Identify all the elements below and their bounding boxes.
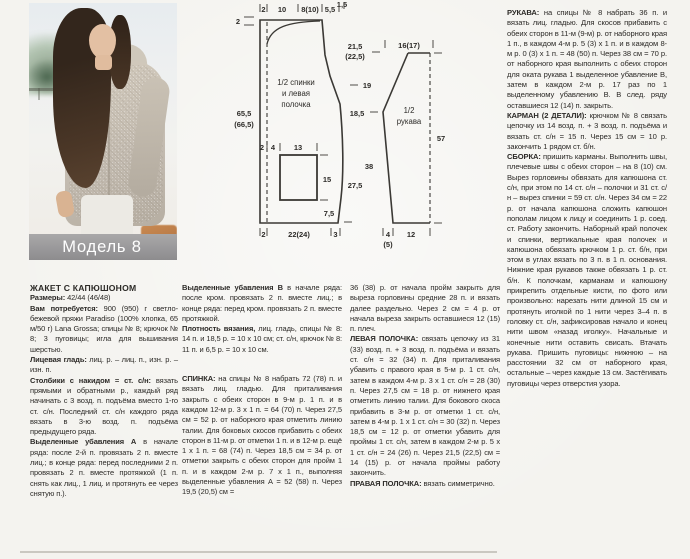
paragraph-text: в начале ряда: после 2-й п. провязать 2 … xyxy=(30,437,178,497)
measure-sleeve-top: 16(17) xyxy=(398,41,420,50)
paragraph-label: Плотность вязания, xyxy=(182,324,255,333)
height-ticks xyxy=(344,52,380,222)
paragraph-label: Выделенные убавления А xyxy=(30,437,136,446)
left-edge-ticks xyxy=(244,17,254,25)
paragraph-assembly: СБОРКА: пришить карманы. Выполнить швы, … xyxy=(507,152,667,389)
measure-bottom-width: 22(24) xyxy=(288,230,310,239)
model-photo: Модель 8 xyxy=(29,3,177,260)
paragraph-label: ПРАВАЯ ПОЛОЧКА: xyxy=(350,479,421,488)
measure-hem-height: 27,5 xyxy=(348,181,363,190)
paragraph-text: связать цепочку из 31 (33) возд. п. + 3 … xyxy=(350,334,500,477)
back-piece-label: и левая xyxy=(282,89,310,98)
paragraph-text: на спицы № 8 набрать 72 (78) п. и вязать… xyxy=(182,374,342,496)
measure-armhole-height: 21,5 xyxy=(348,42,363,51)
measure-bottom-side: 3 xyxy=(333,230,337,239)
neckline-curve xyxy=(267,21,320,44)
paragraph-gauge: Плотность вязания, лиц. гладь, спицы № 8… xyxy=(182,324,342,355)
back-piece-label: полочка xyxy=(281,100,311,109)
measure-top-small: 1,5 xyxy=(337,0,347,9)
paragraph-materials: Вам потребуется: 900 (950) г светло-беже… xyxy=(30,304,178,355)
paragraph-sizes: Размеры: 42/44 (46/48) xyxy=(30,293,178,303)
measure-bottom-band: 2 xyxy=(261,230,265,239)
pattern-schematic: 2 10 8(10) 5,5 1,5 2 65,5 (66,5) 1/2 спи… xyxy=(228,0,478,252)
measure-top-band: 2 xyxy=(261,5,265,14)
measure-top-back: 10 xyxy=(278,5,286,14)
photo-neck xyxy=(95,55,112,70)
magazine-page: Модель 8 2 10 8(10) 5,5 1,5 2 65,5 (66,5… xyxy=(0,0,690,559)
measure-pocket-to-hem: 7,5 xyxy=(324,209,334,218)
paragraph-pocket: КАРМАН (2 ДЕТАЛИ): крючком № 8 связать ц… xyxy=(507,111,667,152)
measure-pocket-width: 13 xyxy=(294,143,302,152)
paragraph-dc-stitch: Столбики с накидом = ст. с/н: вязать пря… xyxy=(30,376,178,438)
column-4: РУКАВА: на спицы № 8 набрать 36 п. и вяз… xyxy=(507,8,667,389)
measure-waist-height: 18,5 xyxy=(350,109,365,118)
paragraph-back-continued: 36 (38) р. от начала пройм закрыть для в… xyxy=(350,283,500,334)
column-2: Выделенные убавления В в начале ряда: по… xyxy=(182,283,342,498)
paragraph-label: СПИНКА: xyxy=(182,374,215,383)
paragraph-text: 36 (38) р. от начала пройм закрыть для в… xyxy=(350,283,500,333)
paragraph-label: Столбики с накидом = ст. с/н: xyxy=(30,376,151,385)
paragraph-text: пришить карманы. Выполнить швы, плечевые… xyxy=(507,152,667,388)
measure-total-height: 65,5 xyxy=(237,109,252,118)
paragraph-sleeves: РУКАВА: на спицы № 8 набрать 36 п. и вяз… xyxy=(507,8,667,111)
paragraph-text: вязать симметрично. xyxy=(421,479,494,488)
measure-sleeve-bottom1: 4 xyxy=(386,230,391,239)
paragraph-left-front: ЛЕВАЯ ПОЛОЧКА: связать цепочку из 31 (33… xyxy=(350,334,500,478)
column-1: ЖАКЕТ С КАПЮШОНОМ Размеры: 42/44 (46/48)… xyxy=(30,283,178,499)
measure-pocket-off2: 4 xyxy=(271,143,276,152)
column-3: 36 (38) р. от начала пройм закрыть для в… xyxy=(350,283,500,489)
measure-sleeve-bottom1-alt: (5) xyxy=(383,240,393,249)
paragraph-back: СПИНКА: на спицы № 8 набрать 72 (78) п. … xyxy=(182,374,342,498)
paragraph-label: РУКАВА: xyxy=(507,8,539,17)
measure-left-top: 2 xyxy=(236,17,240,26)
paragraph-stockinette: Лицевая гладь: лиц. р. – лиц. п., изн. р… xyxy=(30,355,178,376)
measure-top-shoulder: 8(10) xyxy=(301,5,319,14)
measure-total-height-alt: (66,5) xyxy=(234,120,254,129)
paragraph-label: Размеры: xyxy=(30,293,65,302)
paragraph-label: Выделенные убавления В xyxy=(182,283,283,292)
paragraph-text: 42/44 (46/48) xyxy=(65,293,110,302)
paragraph-text: на спицы № 8 набрать 36 п. и вязать лиц.… xyxy=(507,8,667,110)
paragraph-decrease-b: Выделенные убавления В в начале ряда: по… xyxy=(182,283,342,324)
article-title: ЖАКЕТ С КАПЮШОНОМ xyxy=(30,283,178,293)
measure-upper-height: 19 xyxy=(363,81,371,90)
paragraph-label: Вам потребуется: xyxy=(30,304,98,313)
measure-sleeve-bottom2: 12 xyxy=(407,230,415,239)
paragraph-right-front: ПРАВАЯ ПОЛОЧКА: вязать симметрично. xyxy=(350,479,500,489)
pocket-outline xyxy=(280,155,317,200)
model-caption: Модель 8 xyxy=(62,238,141,257)
back-piece-outline xyxy=(260,20,343,223)
model-caption-bar: Модель 8 xyxy=(29,234,177,260)
paragraph-label: КАРМАН (2 ДЕТАЛИ): xyxy=(507,111,587,120)
bottom-divider xyxy=(20,551,497,553)
measure-pocket-off1: 2 xyxy=(260,143,264,152)
paragraph-decrease-a: Выделенные убавления А в начале ряда: по… xyxy=(30,437,178,499)
paragraph-label: Лицевая гладь: xyxy=(30,355,87,364)
measure-armhole-height-alt: (22,5) xyxy=(345,52,365,61)
back-piece-label: 1/2 спинки xyxy=(277,78,315,87)
photo-face xyxy=(89,24,116,59)
paragraph-label: СБОРКА: xyxy=(507,152,541,161)
measure-pocket-height: 15 xyxy=(323,175,331,184)
photo-fence-post xyxy=(38,88,40,100)
paragraph-label: ЛЕВАЯ ПОЛОЧКА: xyxy=(350,334,418,343)
sleeve-label: рукава xyxy=(397,117,422,126)
measure-sleeve-height: 57 xyxy=(437,134,445,143)
measure-top-neck: 5,5 xyxy=(325,5,335,14)
sleeve-label: 1/2 xyxy=(404,106,415,115)
measure-sleeve-slant: 38 xyxy=(365,162,373,171)
sleeve-outline xyxy=(383,53,430,223)
